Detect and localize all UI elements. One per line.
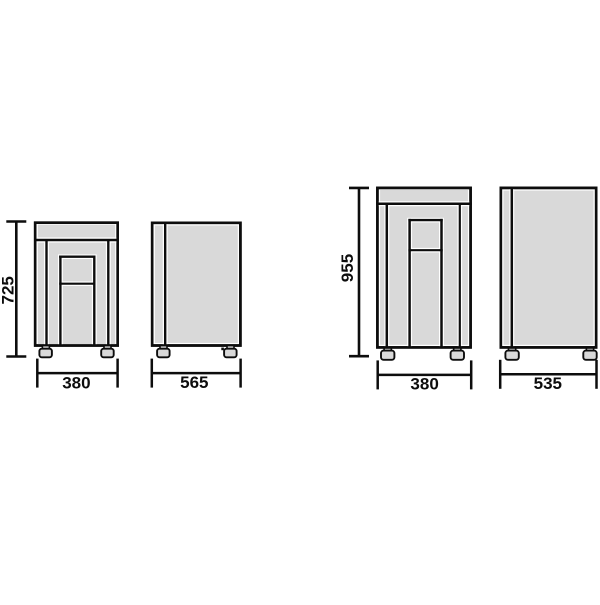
svg-text:725: 725 [0,276,18,304]
svg-text:955: 955 [338,254,357,282]
svg-text:380: 380 [410,375,438,394]
svg-text:535: 535 [534,374,562,393]
svg-text:380: 380 [62,374,90,393]
svg-text:565: 565 [180,373,208,392]
